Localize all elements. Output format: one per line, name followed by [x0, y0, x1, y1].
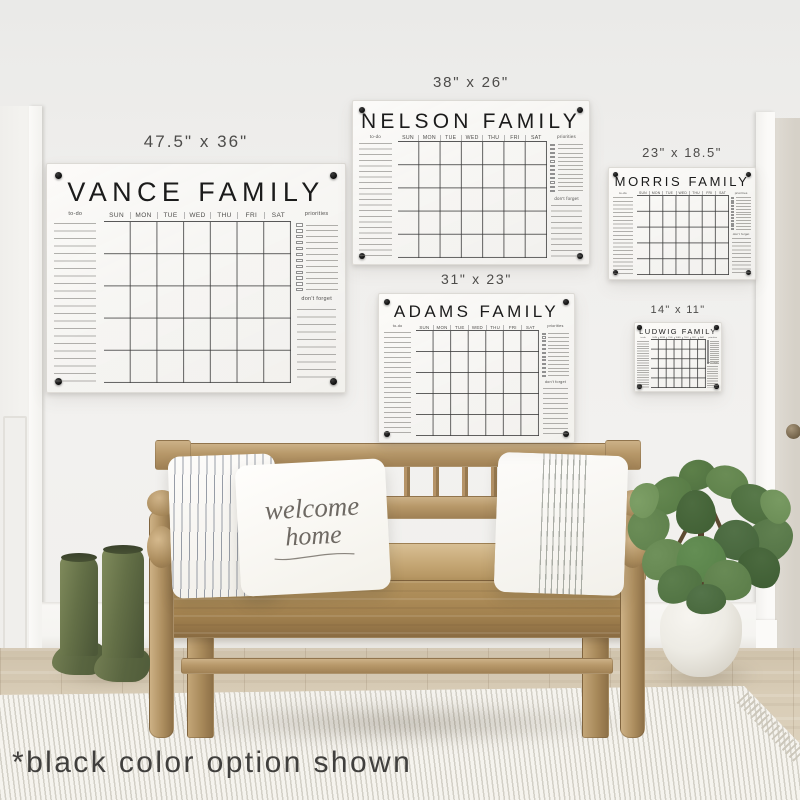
- weekday-label: SUN: [651, 337, 658, 339]
- checklist-line: [548, 371, 569, 372]
- calendar-adams: 31" x 23" ADAMS FAMILY to-do SUNMONTUEWE…: [378, 293, 575, 443]
- bench-front-leg-right: [582, 636, 609, 738]
- priorities-label: priorities: [707, 337, 719, 339]
- checkbox: [296, 288, 303, 291]
- checklist-line: [548, 364, 569, 365]
- left-door-frame: [29, 106, 42, 690]
- weekday-label: TUE: [450, 325, 468, 330]
- checkbox: [296, 265, 303, 268]
- priorities-checklist: [550, 143, 583, 194]
- dont-forget-lines: [707, 366, 718, 388]
- dont-forget-label: don't forget: [707, 362, 719, 364]
- checkbox: [542, 352, 546, 354]
- calendar-ludwig: 14" x 11" LUDWIG FAMILY to-do SUNMONTUEW…: [634, 322, 722, 392]
- dont-forget-lines: [543, 388, 568, 436]
- family-name-title: ADAMS FAMILY: [379, 302, 574, 322]
- checklist-line: [306, 260, 338, 261]
- checkbox: [550, 144, 555, 146]
- acrylic-board: ADAMS FAMILY to-do SUNMONTUEWEDTHUFRISAT…: [378, 293, 575, 443]
- boot-right-shaft: [102, 548, 144, 658]
- checklist-line: [306, 254, 338, 255]
- weekday-label: SAT: [521, 325, 539, 330]
- bench-front-leg-left: [187, 636, 214, 738]
- checkbox: [542, 344, 546, 346]
- checklist-row: [296, 287, 338, 293]
- size-label: 14" x 11": [634, 304, 722, 316]
- checkbox: [296, 253, 303, 256]
- checklist-line: [736, 200, 752, 201]
- size-label: 38" x 26": [352, 74, 590, 91]
- checkbox: [731, 228, 734, 230]
- checkbox: [550, 152, 555, 154]
- script-flourish: [272, 549, 356, 561]
- calendar-vance: 47.5" x 36" VANCE FAMILY to-do SUNMONTUE…: [46, 163, 346, 393]
- calendar-morris: 23" x 18.5" MORRIS FAMILY to-do SUNMONTU…: [608, 167, 756, 280]
- weekday-label: TUE: [440, 135, 461, 141]
- family-name-title: VANCE FAMILY: [47, 177, 345, 208]
- checklist-line: [548, 333, 569, 334]
- checklist-line: [548, 375, 569, 376]
- checkbox: [542, 375, 546, 377]
- dont-forget-label: don't forget: [731, 232, 751, 236]
- todo-label: to-do: [384, 324, 411, 328]
- checklist-line: [306, 289, 338, 290]
- checklist-line: [306, 278, 338, 279]
- weekday-label: FRI: [504, 135, 525, 141]
- weekday-label: THU: [210, 212, 237, 219]
- checkbox: [542, 371, 546, 373]
- welcome-home-pillow: welcome home: [235, 458, 392, 597]
- todo-label: to-do: [359, 134, 392, 139]
- checklist-row: [542, 374, 569, 378]
- checkbox: [550, 186, 555, 188]
- dont-forget-lines: [732, 238, 751, 274]
- checklist-line: [736, 229, 752, 230]
- checkbox: [296, 259, 303, 262]
- checklist-line: [548, 341, 569, 342]
- checklist-line: [306, 225, 338, 226]
- checkbox: [296, 276, 303, 279]
- fiddle-leaf-fig-plant: [618, 450, 800, 690]
- dont-forget-label: don't forget: [296, 296, 338, 302]
- weekday-label: FRI: [237, 212, 264, 219]
- priorities-checklist: [707, 340, 719, 361]
- priorities-label: priorities: [542, 324, 569, 328]
- weekday-label: TUE: [662, 191, 675, 195]
- checklist-line: [558, 157, 583, 158]
- checklist-line: [548, 337, 569, 338]
- acrylic-board: NELSON FAMILY to-do SUNMONTUEWEDTHUFRISA…: [352, 100, 590, 265]
- checklist-line: [548, 356, 569, 357]
- checkbox: [550, 177, 555, 179]
- checklist-row: [731, 228, 751, 231]
- checkbox: [550, 148, 555, 150]
- boot-right-opening: [103, 545, 143, 554]
- pillow-text-home: home: [285, 522, 343, 551]
- weekday-label: THU: [482, 135, 503, 141]
- checklist-line: [548, 360, 569, 361]
- weekday-label: MON: [130, 212, 157, 219]
- boot-left-shaft: [60, 556, 98, 656]
- checkbox: [550, 173, 555, 175]
- weekday-label: TUE: [157, 212, 184, 219]
- weekday-label: MON: [649, 191, 662, 195]
- todo-label: to-do: [637, 337, 649, 339]
- checklist-line: [558, 153, 583, 154]
- family-name-title: LUDWIG FAMILY: [635, 327, 721, 336]
- weekday-label: WED: [468, 325, 486, 330]
- calendar-nelson: 38" x 26" NELSON FAMILY to-do SUNMONTUEW…: [352, 100, 590, 265]
- weekday-header-row: SUNMONTUEWEDTHUFRISAT: [104, 211, 292, 222]
- checklist-line: [306, 283, 338, 284]
- checklist-line: [558, 144, 583, 145]
- checklist-line: [558, 190, 583, 191]
- checkbox: [542, 359, 546, 361]
- checklist-line: [558, 161, 583, 162]
- checklist-row: [550, 189, 583, 193]
- priorities-label: priorities: [296, 211, 338, 217]
- priorities-checklist: [731, 196, 751, 230]
- checklist-line: [736, 197, 752, 198]
- weekday-label: FRI: [503, 325, 521, 330]
- weekday-header-row: SUNMONTUEWEDTHUFRISAT: [398, 134, 547, 142]
- weekday-label: SAT: [715, 191, 728, 195]
- checkbox: [296, 247, 303, 250]
- size-label: 47.5" x 36": [46, 132, 346, 152]
- checklist-line: [736, 203, 752, 204]
- checkbox: [550, 190, 555, 192]
- checklist-line: [736, 209, 752, 210]
- checklist-line: [558, 178, 583, 179]
- checklist-line: [306, 242, 338, 243]
- checklist-line: [306, 236, 338, 237]
- checkbox: [542, 333, 546, 335]
- checklist-line: [558, 174, 583, 175]
- checklist-line: [736, 206, 752, 207]
- priorities-label: priorities: [731, 191, 751, 195]
- checklist-line: [306, 248, 338, 249]
- checkbox: [542, 367, 546, 369]
- checkbox: [296, 271, 303, 274]
- weekday-label: SUN: [104, 212, 130, 219]
- checkbox: [550, 169, 555, 171]
- month-grid: [104, 222, 292, 384]
- checkbox: [296, 223, 303, 226]
- checklist-line: [548, 348, 569, 349]
- checkbox: [542, 336, 546, 338]
- month-grid: [651, 340, 705, 388]
- checklist-line: [736, 214, 752, 215]
- checklist-line: [736, 212, 752, 213]
- family-name-title: NELSON FAMILY: [353, 110, 589, 134]
- checklist-line: [548, 368, 569, 369]
- todo-lines: [359, 143, 392, 257]
- checklist-line: [736, 217, 752, 218]
- weekday-header-row: SUNMONTUEWEDTHUFRISAT: [416, 324, 539, 331]
- size-label: 31" x 23": [378, 271, 575, 287]
- checklist-line: [736, 220, 752, 221]
- todo-label: to-do: [613, 191, 633, 195]
- checklist-line: [306, 272, 338, 273]
- priorities-label: priorities: [550, 134, 583, 139]
- checkbox: [296, 235, 303, 238]
- checkbox: [550, 165, 555, 167]
- month-grid: [416, 331, 539, 436]
- left-door-panel: [3, 416, 27, 670]
- checklist-line: [736, 223, 752, 224]
- checkbox: [542, 348, 546, 350]
- dont-forget-label: don't forget: [542, 380, 569, 384]
- checkbox: [542, 340, 546, 342]
- plant-leaf: [676, 490, 716, 534]
- todo-lines: [637, 341, 649, 389]
- weekday-label: MON: [658, 337, 666, 339]
- door-knob: [786, 424, 800, 439]
- checkbox: [550, 160, 555, 162]
- checkbox: [296, 229, 303, 232]
- checklist-line: [558, 182, 583, 183]
- checkbox: [296, 282, 303, 285]
- striped-pillow-right: [494, 452, 629, 596]
- checklist-line: [548, 345, 569, 346]
- priorities-checklist: [542, 332, 569, 378]
- checkbox: [296, 241, 303, 244]
- size-label: 23" x 18.5": [608, 145, 756, 160]
- weekday-label: THU: [682, 337, 690, 339]
- checkbox: [550, 181, 555, 183]
- checklist-line: [558, 148, 583, 149]
- weekday-label: FRI: [702, 191, 715, 195]
- todo-label: to-do: [54, 211, 96, 217]
- priorities-checklist: [296, 222, 338, 293]
- weekday-label: SUN: [637, 191, 649, 195]
- checklist-line: [558, 186, 583, 187]
- todo-lines: [384, 332, 411, 436]
- weekday-label: SUN: [416, 325, 433, 330]
- checkbox: [542, 363, 546, 365]
- acrylic-board: MORRIS FAMILY to-do SUNMONTUEWEDTHUFRISA…: [608, 167, 756, 280]
- weekday-label: MON: [433, 325, 451, 330]
- checklist-line: [306, 230, 338, 231]
- left-door: [0, 106, 42, 690]
- dont-forget-label: don't forget: [550, 196, 583, 201]
- checklist-line: [736, 226, 752, 227]
- dont-forget-lines: [297, 309, 336, 384]
- weekday-label: SAT: [698, 337, 706, 339]
- weekday-label: SAT: [264, 212, 291, 219]
- checklist-line: [306, 266, 338, 267]
- weekday-label: MON: [418, 135, 439, 141]
- weekday-label: THU: [486, 325, 504, 330]
- weekday-label: SUN: [398, 135, 418, 141]
- acrylic-board: LUDWIG FAMILY to-do SUNMONTUEWEDTHUFRISA…: [634, 322, 722, 392]
- weekday-label: WED: [674, 337, 682, 339]
- weekday-label: WED: [184, 212, 211, 219]
- weekday-label: THU: [689, 191, 702, 195]
- weekday-label: WED: [461, 135, 482, 141]
- todo-lines: [54, 223, 96, 383]
- month-grid: [637, 196, 729, 275]
- weekday-label: FRI: [690, 337, 698, 339]
- checklist-line: [548, 352, 569, 353]
- checkbox: [550, 156, 555, 158]
- month-grid: [398, 142, 547, 258]
- rain-boots: [56, 546, 156, 686]
- boot-left-opening: [61, 553, 97, 562]
- family-name-title: MORRIS FAMILY: [609, 174, 755, 189]
- weekday-label: TUE: [666, 337, 674, 339]
- checkbox: [542, 356, 546, 358]
- checklist-line: [558, 165, 583, 166]
- checklist-line: [558, 169, 583, 170]
- dont-forget-lines: [551, 205, 582, 258]
- weekday-label: WED: [676, 191, 689, 195]
- bench-stretcher: [181, 658, 613, 674]
- todo-lines: [613, 197, 633, 275]
- footnote-caption: *black color option shown: [12, 746, 412, 780]
- acrylic-board: VANCE FAMILY to-do SUNMONTUEWEDTHUFRISAT…: [46, 163, 346, 393]
- weekday-label: SAT: [525, 135, 546, 141]
